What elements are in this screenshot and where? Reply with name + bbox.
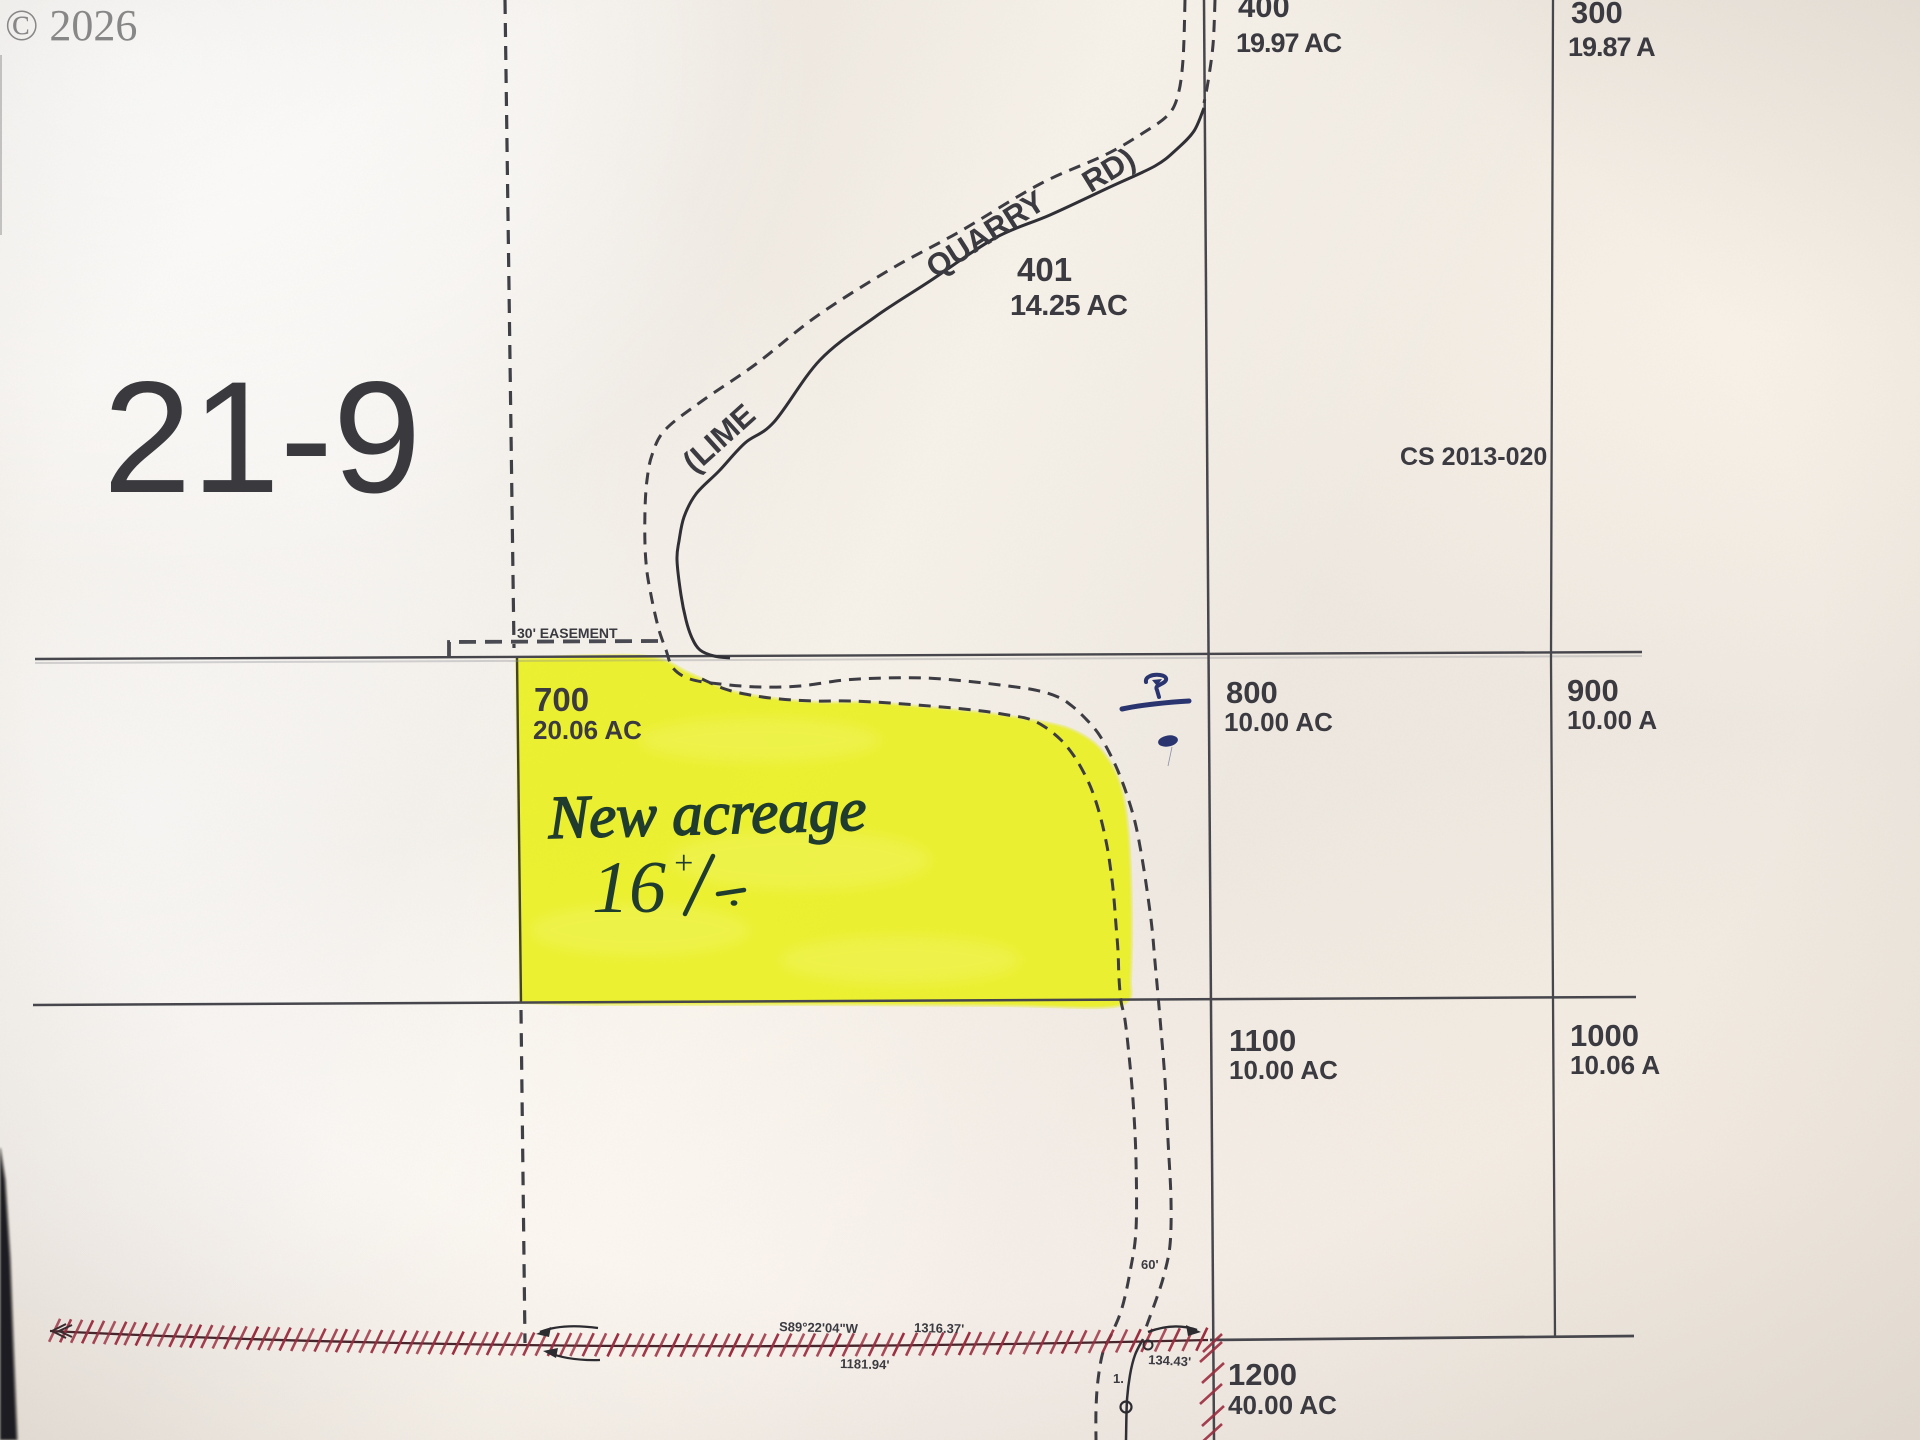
svg-text:14.25 AC: 14.25 AC (1010, 290, 1128, 322)
svg-text:10.00 A: 10.00 A (1567, 705, 1657, 735)
svg-text:© 2026: © 2026 (5, 1, 137, 50)
svg-text:19.87 A: 19.87 A (1568, 32, 1655, 62)
svg-text:60': 60' (1141, 1257, 1159, 1272)
svg-text:20.06 AC: 20.06 AC (533, 715, 642, 745)
svg-text:400: 400 (1238, 0, 1290, 24)
svg-text:19.97 AC: 19.97 AC (1236, 28, 1342, 58)
svg-text:10.06 A: 10.06 A (1570, 1050, 1660, 1080)
svg-text:134.43': 134.43' (1148, 1352, 1192, 1369)
svg-text:CS 2013-020: CS 2013-020 (1400, 443, 1547, 471)
svg-text:40.00 AC: 40.00 AC (1228, 1390, 1337, 1420)
svg-text:1000: 1000 (1570, 1018, 1639, 1053)
svg-text:21-9: 21-9 (103, 348, 421, 526)
svg-text:1.: 1. (1113, 1371, 1124, 1386)
svg-text:401: 401 (1017, 251, 1072, 288)
svg-text:800: 800 (1226, 675, 1278, 710)
svg-text:New acreage: New acreage (547, 777, 868, 852)
svg-text:700: 700 (534, 681, 589, 718)
svg-text:1100: 1100 (1229, 1023, 1296, 1058)
svg-text:900: 900 (1567, 673, 1619, 708)
svg-text:+: + (672, 845, 695, 882)
svg-text:S89°22'04"W: S89°22'04"W (779, 1319, 859, 1336)
svg-text:1200: 1200 (1228, 1357, 1297, 1392)
svg-text:1181.94': 1181.94' (840, 1356, 890, 1372)
svg-text:1316.37': 1316.37' (914, 1320, 964, 1336)
svg-text:10.00 AC: 10.00 AC (1224, 707, 1333, 737)
svg-text:300: 300 (1571, 0, 1623, 30)
svg-text:30' EASEMENT: 30' EASEMENT (517, 625, 618, 641)
svg-text:16: 16 (592, 847, 666, 929)
svg-text:10.00 AC: 10.00 AC (1229, 1055, 1338, 1085)
